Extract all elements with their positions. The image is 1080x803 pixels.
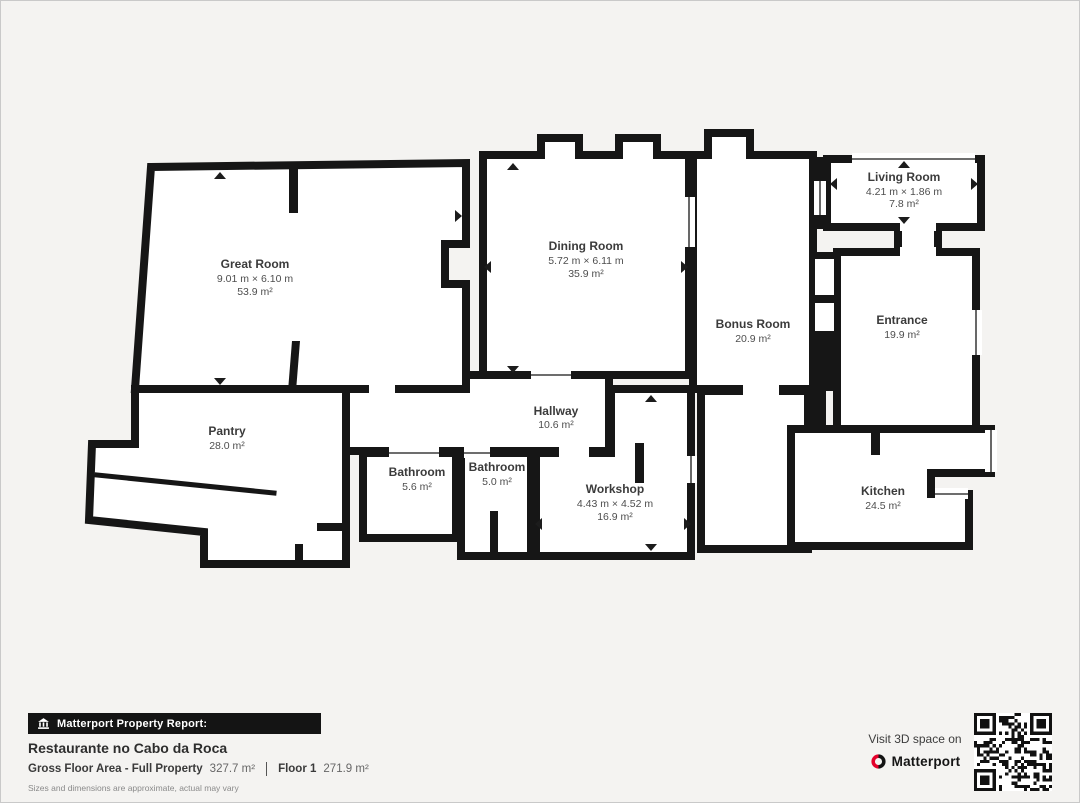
room-label-hallway: Hallway 10.6 m² — [534, 404, 579, 431]
svg-text:Bathroom: Bathroom — [469, 460, 526, 474]
svg-text:53.9 m²: 53.9 m² — [237, 286, 273, 298]
floor-label: Floor 1 — [278, 763, 316, 775]
floorplan-walls — [89, 133, 991, 564]
disclaimer-text: Sizes and dimensions are approximate, ac… — [28, 783, 239, 793]
svg-text:Bathroom: Bathroom — [389, 465, 446, 479]
svg-text:Bonus Room: Bonus Room — [716, 317, 791, 331]
gross-area-value: 327.7 m² — [210, 763, 255, 775]
floor-plan: Great Room 9.01 m × 6.10 m 53.9 m² Dinin… — [1, 1, 1080, 803]
matterport-logo-icon — [870, 753, 887, 770]
report-header-bar: Matterport Property Report: — [28, 713, 321, 734]
room-shape-great-room — [135, 163, 466, 389]
area-summary: Gross Floor Area - Full Property 327.7 m… — [28, 762, 369, 776]
svg-text:4.21 m × 1.86 m: 4.21 m × 1.86 m — [866, 186, 942, 198]
svg-text:Pantry: Pantry — [208, 424, 246, 438]
floor-area-value: 271.9 m² — [323, 763, 368, 775]
svg-text:Workshop: Workshop — [586, 482, 644, 496]
svg-text:Living Room: Living Room — [868, 170, 941, 184]
svg-text:5.72 m × 6.11 m: 5.72 m × 6.11 m — [548, 255, 624, 267]
building-icon — [37, 717, 50, 730]
svg-text:24.5 m²: 24.5 m² — [865, 500, 901, 512]
svg-text:16.9 m²: 16.9 m² — [597, 511, 633, 523]
svg-text:Entrance: Entrance — [876, 313, 928, 327]
visit-3d-cta: Visit 3D space on Matterport — [859, 732, 971, 770]
svg-text:4.43 m × 4.52 m: 4.43 m × 4.52 m — [577, 498, 653, 510]
svg-text:9.01 m × 6.10 m: 9.01 m × 6.10 m — [217, 273, 293, 285]
svg-text:5.0 m²: 5.0 m² — [482, 476, 512, 488]
qr-code — [974, 713, 1052, 791]
svg-text:19.9 m²: 19.9 m² — [884, 329, 920, 341]
svg-text:7.8 m²: 7.8 m² — [889, 198, 919, 210]
svg-text:20.9 m²: 20.9 m² — [735, 333, 771, 345]
property-report-page: Great Room 9.01 m × 6.10 m 53.9 m² Dinin… — [0, 0, 1080, 803]
svg-text:Great Room: Great Room — [221, 257, 290, 271]
svg-text:Dining Room: Dining Room — [549, 239, 624, 253]
report-bar-label: Matterport Property Report: — [57, 718, 207, 730]
svg-text:35.9 m²: 35.9 m² — [568, 268, 604, 280]
divider — [266, 762, 267, 776]
visit-text: Visit 3D space on — [859, 732, 971, 746]
svg-text:Kitchen: Kitchen — [861, 484, 905, 498]
svg-text:Hallway: Hallway — [534, 404, 579, 418]
property-name: Restaurante no Cabo da Roca — [28, 740, 227, 756]
matterport-brand: Matterport — [859, 753, 971, 770]
qr-code-image — [974, 713, 1052, 791]
svg-text:5.6 m²: 5.6 m² — [402, 481, 432, 493]
svg-text:28.0 m²: 28.0 m² — [209, 440, 245, 452]
matterport-wordmark: Matterport — [892, 754, 961, 769]
svg-text:10.6 m²: 10.6 m² — [538, 419, 574, 431]
room-shape-bonus-room — [693, 133, 813, 389]
gross-area-label: Gross Floor Area - Full Property — [28, 763, 203, 775]
